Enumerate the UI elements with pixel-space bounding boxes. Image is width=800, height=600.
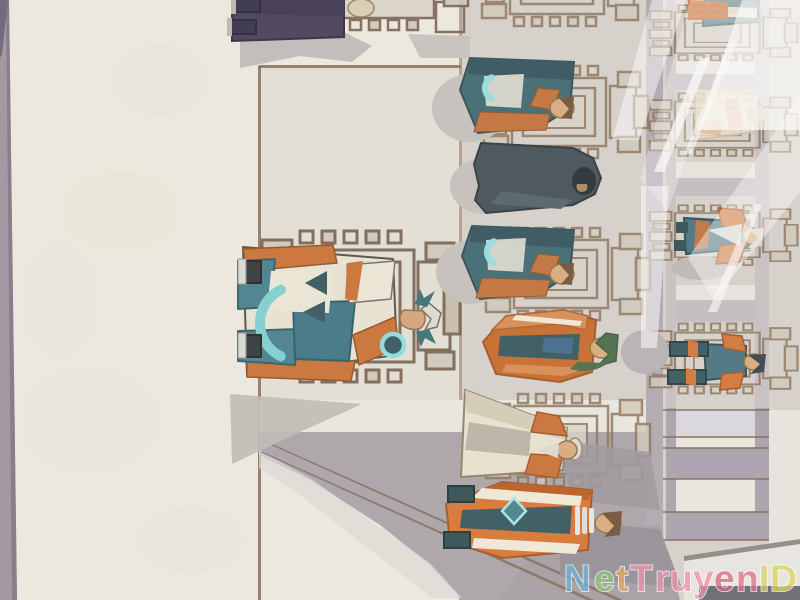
svg-text:u: u xyxy=(670,558,693,599)
svg-text:n: n xyxy=(736,558,759,599)
svg-text:y: y xyxy=(693,558,714,599)
svg-text:T: T xyxy=(630,558,653,599)
svg-text:e: e xyxy=(594,558,615,599)
svg-text:e: e xyxy=(714,558,735,599)
svg-text:D: D xyxy=(770,558,797,599)
svg-text:t: t xyxy=(616,558,628,599)
svg-text:r: r xyxy=(655,558,669,599)
svg-text:N: N xyxy=(564,558,591,599)
svg-text:I: I xyxy=(759,558,769,599)
